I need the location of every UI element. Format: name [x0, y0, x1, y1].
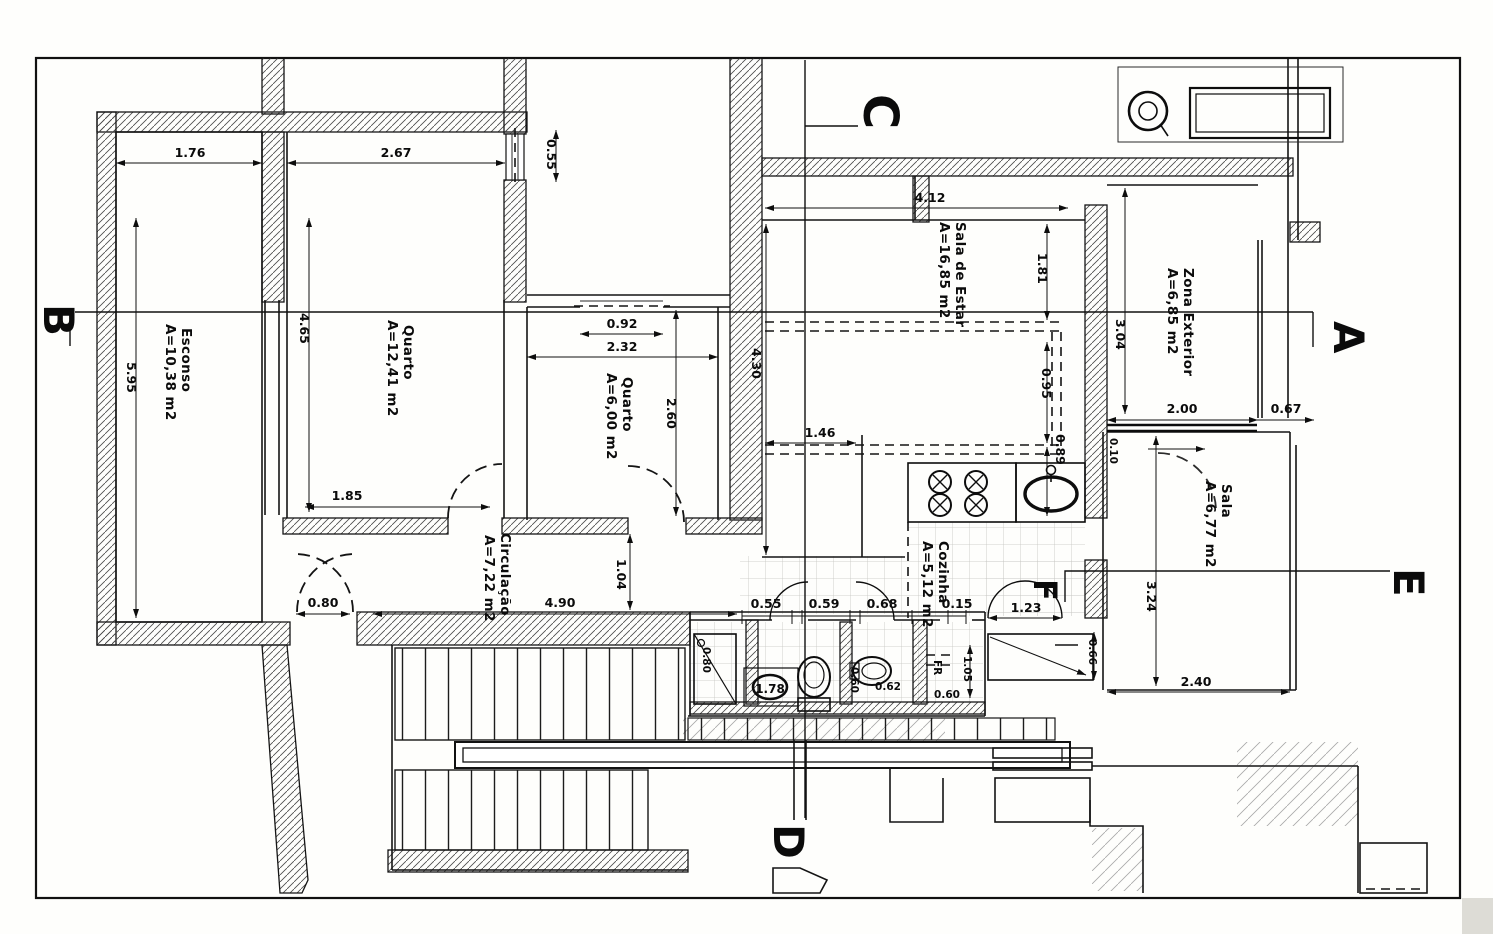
storage-tank [1190, 88, 1330, 138]
floor-plan-drawing: B A C D E F [0, 0, 1493, 934]
wall [283, 518, 448, 534]
dim-label: 1.05 [961, 656, 973, 682]
wall [504, 58, 526, 134]
room-area-sala: A=6,77 m2 [1202, 481, 1218, 568]
burner [965, 471, 987, 493]
wall [1290, 222, 1320, 242]
dim-label: 0.95 [1039, 368, 1054, 399]
wall-slanted [262, 645, 308, 893]
stair-flight-lower [395, 770, 648, 850]
wall-stairs-top [357, 612, 690, 645]
partitions [116, 58, 1298, 716]
room-area-circulacao: A=7,22 m2 [481, 535, 497, 622]
wall [97, 112, 527, 132]
dim-label: 0.89 [1053, 434, 1068, 465]
dim-label: 0.66 [1086, 639, 1098, 665]
dim-label: 2.60 [664, 398, 679, 429]
dim-label: 1.85 [332, 488, 363, 503]
section-marker-c: C [852, 94, 908, 129]
dim-label: 2.32 [607, 339, 638, 354]
room-area-sala-de-estar: A=16,85 m2 [936, 222, 952, 319]
room-area-quarto-1: A=12,41 m2 [384, 320, 400, 417]
cooktop [908, 463, 1016, 522]
dim-label: 0.59 [809, 596, 840, 611]
room-area-quarto-2: A=6,00 m2 [603, 373, 619, 460]
dim-label: 0.80 [700, 647, 712, 673]
counter-ramp [988, 634, 1093, 680]
dim-label: 4.12 [915, 190, 946, 205]
window-vertical [506, 128, 524, 186]
section-marker-e: E [1384, 568, 1433, 597]
dim-label: 5.95 [124, 362, 139, 393]
dim-label: 0.67 [1271, 401, 1302, 416]
dim-label: 2.00 [1167, 401, 1198, 416]
dim-label: 4.65 [297, 313, 312, 344]
room-area-zona-exterior: A=6,85 m2 [1164, 268, 1180, 355]
wall [97, 112, 116, 645]
dim-label: 4.90 [545, 595, 576, 610]
dim-label: 1.04 [614, 559, 629, 590]
dim-label: 1.78 [755, 682, 785, 696]
wall [730, 58, 762, 520]
burner [965, 494, 987, 516]
wall [504, 180, 526, 302]
room-name-sala-de-estar: Sala de Estar [952, 222, 968, 327]
room-name-sala: Sala [1218, 484, 1234, 518]
room-area-cozinha: A=5,12 m2 [919, 541, 935, 628]
dim-label: 1.81 [1035, 253, 1050, 284]
dim-label: 2.40 [1181, 674, 1212, 689]
dim-label: 1.46 [805, 425, 836, 440]
wall-foot [773, 868, 827, 893]
dim-label: 0.55 [751, 596, 782, 611]
kitchen-sink [1016, 463, 1085, 522]
door-arc-quarto-1241 [448, 464, 502, 518]
corner-smudge [1462, 898, 1493, 934]
stair-flight-upper-right [688, 718, 1055, 740]
section-marker-f: F [1026, 579, 1064, 601]
floor-plan-sheet: B A C D E F [0, 0, 1493, 934]
wall [502, 518, 628, 534]
dim-label: 0.10 [1107, 438, 1119, 464]
dim-label: 0.92 [607, 316, 638, 331]
dim-label: 4.30 [749, 348, 764, 379]
dim-label: 0.80 [308, 595, 339, 610]
dim-label: 0.68 [867, 596, 898, 611]
dim-label: 3.04 [1113, 319, 1128, 350]
wall [97, 622, 290, 645]
dim-label: 0.62 [875, 681, 901, 693]
wall [262, 58, 284, 114]
section-line-EF [1065, 571, 1390, 602]
wall [262, 132, 284, 302]
section-marker-b: B [34, 304, 83, 336]
room-area-esconso: A=10,38 m2 [162, 324, 178, 421]
window-dashed [574, 294, 670, 308]
dim-label: 3.24 [1144, 581, 1159, 612]
stair-flight-upper-left [395, 648, 685, 740]
section-marker-d: D [764, 824, 813, 859]
water-heater [1118, 67, 1343, 142]
sliding-door-rail [1107, 425, 1257, 449]
dim-label: 1.76 [175, 145, 206, 160]
room-name-circulacao: Circulação [497, 533, 513, 616]
room-name-zona-exterior: Zona Exterior [1180, 268, 1196, 376]
wall-bath-partition [913, 620, 927, 704]
dim-label: 1.23 [1011, 600, 1042, 615]
wall-stairs-bottom [388, 850, 688, 872]
dim-label: 2.67 [381, 145, 412, 160]
burner [929, 494, 951, 516]
stair-railing [455, 742, 1070, 768]
burner [929, 471, 951, 493]
room-name-quarto-2: Quarto [619, 377, 635, 432]
dim-label: 0.55 [544, 139, 559, 170]
dim-label: 0.60 [848, 667, 860, 693]
wall [686, 518, 762, 534]
wall [762, 158, 1293, 176]
room-name-cozinha: Cozinha [935, 541, 951, 604]
room-name-quarto-1: Quarto [400, 325, 416, 380]
section-marker-a: A [1324, 321, 1373, 354]
fridge-label: FR [931, 660, 943, 675]
room-name-esconso: Esconso [178, 328, 194, 392]
dim-label: 0.60 [934, 689, 960, 701]
